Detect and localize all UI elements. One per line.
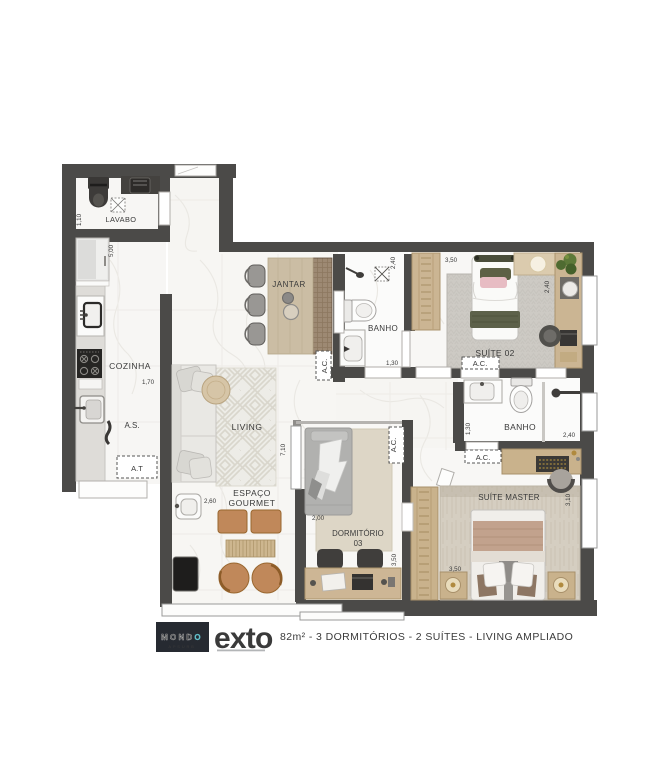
svg-text:A.C.: A.C. <box>389 438 398 453</box>
svg-text:A.T: A.T <box>131 464 143 473</box>
svg-text:COZINHA: COZINHA <box>109 361 151 371</box>
svg-text:5,00: 5,00 <box>108 244 115 257</box>
svg-text:2,00: 2,00 <box>312 515 325 522</box>
svg-text:7,10: 7,10 <box>280 443 287 456</box>
svg-text:2,60: 2,60 <box>204 498 217 505</box>
svg-text:2,40: 2,40 <box>544 280 551 293</box>
svg-text:ESPAÇO: ESPAÇO <box>233 488 271 498</box>
svg-text:3,50: 3,50 <box>391 553 398 566</box>
svg-text:BANHO: BANHO <box>504 422 536 432</box>
svg-text:A.S.: A.S. <box>124 421 139 430</box>
svg-text:1,30: 1,30 <box>465 422 472 435</box>
svg-text:A.C.: A.C. <box>473 359 488 368</box>
svg-text:MONDO: MONDO <box>161 633 203 642</box>
svg-text:BANHO: BANHO <box>368 324 398 333</box>
svg-text:3,50: 3,50 <box>445 257 458 264</box>
svg-text:3,50: 3,50 <box>449 566 462 573</box>
svg-text:3,10: 3,10 <box>565 493 572 506</box>
svg-text:1,30: 1,30 <box>386 360 399 367</box>
svg-text:LAVABO: LAVABO <box>106 215 137 224</box>
svg-text:2,40: 2,40 <box>390 256 397 269</box>
svg-text:GOURMET: GOURMET <box>229 498 276 508</box>
svg-text:1,70: 1,70 <box>142 379 155 386</box>
svg-text:LIVING: LIVING <box>232 422 263 432</box>
svg-text:A.C.: A.C. <box>320 359 329 374</box>
svg-text:2,40: 2,40 <box>563 432 576 439</box>
svg-text:03: 03 <box>354 539 363 548</box>
svg-text:DORMITÓRIO: DORMITÓRIO <box>332 529 384 538</box>
svg-text:A.C.: A.C. <box>476 453 491 462</box>
svg-text:SUÍTE MASTER: SUÍTE MASTER <box>478 493 540 502</box>
svg-text:1,10: 1,10 <box>76 213 83 226</box>
svg-text:JANTAR: JANTAR <box>272 280 306 289</box>
svg-text:82m² - 3 DORMITÓRIOS - 2 SUÍTE: 82m² - 3 DORMITÓRIOS - 2 SUÍTES - LIVING… <box>280 630 573 643</box>
svg-text:APSURB: APSURB <box>168 644 195 649</box>
